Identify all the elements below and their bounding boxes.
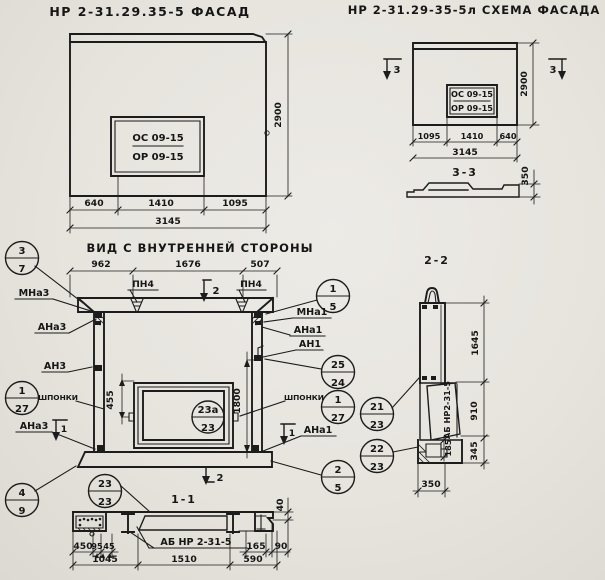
- dim-45: 45: [103, 541, 115, 551]
- marker-2-5-top: 2: [335, 465, 342, 476]
- dim-95: 95: [91, 541, 103, 551]
- label-ana1-bottom: АНа1: [304, 425, 333, 436]
- cut2-top-mark: [203, 280, 211, 295]
- marker-circle-23-23: 23 23: [89, 475, 151, 513]
- label-an1: АН1: [299, 339, 321, 350]
- marker-21-23-bottom: 23: [370, 420, 384, 431]
- label-ana3-bottom: АНа3: [20, 421, 49, 432]
- drawing-sheet: НР 2-31.29.35-5 ФАСАД ОС 09-15 ОР 09-15 …: [0, 0, 605, 580]
- marker-3-7-top: 3: [19, 246, 26, 257]
- inner-window-frame-inner: [129, 387, 238, 444]
- section11-right-tbeam: [256, 515, 266, 530]
- dim-1510: 1510: [171, 554, 197, 565]
- marker-23-23-top: 23: [98, 479, 112, 490]
- facade-drawing: НР 2-31.29.35-5 ФАСАД ОС 09-15 ОР 09-15 …: [49, 4, 292, 233]
- section33-title: 3-3: [452, 166, 478, 179]
- section22-lifting-loop: [425, 288, 439, 303]
- facade-dim-height: 2900: [273, 102, 284, 128]
- cut2-bottom-arrow: [202, 476, 210, 485]
- dim-1045: 1045: [92, 554, 118, 565]
- marker-1-5-bottom: 5: [330, 302, 337, 313]
- marker-4-9-top: 4: [19, 488, 26, 499]
- marker-23-23-bottom: 23: [98, 497, 112, 508]
- section33-dim-350: 350: [520, 166, 531, 185]
- marker-4-9-bottom: 9: [19, 506, 26, 517]
- marker-circle-2-5: 2 5: [271, 461, 355, 495]
- inner-view-title: ВИД С ВНУТРЕННЕЙ СТОРОНЫ: [86, 240, 313, 255]
- pn4-right-label: ПН4: [240, 279, 262, 290]
- schema-cut3-right-arrow: [558, 71, 566, 80]
- marker-22-23-bottom: 23: [370, 462, 384, 473]
- marker-3-7-bottom: 7: [19, 264, 26, 275]
- pn4-left-label: ПН4: [132, 279, 154, 290]
- schema-title: НР 2-31.29-35-5л СХЕМА ФАСАДА: [348, 3, 600, 17]
- dim-590: 590: [243, 554, 262, 565]
- marker-circle-1-27-left: 1 27: [6, 382, 39, 416]
- dim-40: 40: [275, 499, 286, 512]
- dim-165: 165: [246, 541, 265, 552]
- inner-dim-1676: 1676: [175, 259, 201, 270]
- marker-25-24-top: 25: [331, 360, 345, 371]
- marker-1-27-left-top: 1: [19, 386, 26, 397]
- dim-455-arrow-bottom: [119, 412, 125, 419]
- marker-23a-23-top: 23а: [198, 405, 219, 416]
- cut1-right-label: 1: [289, 428, 295, 439]
- section22-embeds: [422, 305, 438, 380]
- dim-345: 345: [469, 441, 480, 460]
- schema-opening-mark-bottom: ОР 09-15: [451, 103, 493, 113]
- pn4-right-leader: [237, 290, 266, 302]
- schema-opening-mark-top: ОС 09-15: [451, 89, 493, 99]
- marker-circle-1-27-right: 1 27: [322, 391, 355, 425]
- inner-dim-962: 962: [91, 259, 110, 270]
- section11-drawing: 23 23 1-1 АБ НР 2-31-5 450 95 45 165 9: [70, 475, 293, 571]
- schema-dim-1095: 1095: [418, 131, 441, 141]
- facade-dim-1410: 1410: [148, 198, 174, 209]
- section22-lifting-loop-inner: [428, 291, 436, 303]
- dim-450: 450: [73, 541, 92, 552]
- label-shponki-right: ШПОНКИ: [284, 393, 324, 402]
- dim-910: 910: [469, 401, 480, 420]
- facade-title: НР 2-31.29.35-5 ФАСАД: [49, 4, 250, 19]
- label-mna1: МНа1: [297, 307, 328, 318]
- facade-dim-640: 640: [84, 198, 103, 209]
- section11-ab-label: АБ НР 2-31-5: [160, 537, 231, 548]
- label-an1-leader: [263, 350, 323, 357]
- label-shponki-left: ШПОНКИ: [38, 393, 78, 402]
- section22-title: 2-2: [424, 254, 450, 267]
- cut1-left-label: 1: [61, 424, 67, 435]
- facade-opening-mark-top: ОС 09-15: [132, 133, 183, 144]
- cut1-left-arrow: [52, 432, 60, 441]
- facade-dim-1095: 1095: [222, 198, 248, 209]
- dim-1800-label: 1800: [232, 388, 243, 414]
- dim-185: 185: [443, 439, 453, 456]
- marker-1-27-right-top: 1: [335, 395, 342, 406]
- marker-circle-4-9: 4 9: [6, 466, 77, 517]
- schema-dim-640: 640: [499, 131, 516, 141]
- schema-cut3-left-arrow: [383, 71, 391, 80]
- dim-350-bottom: 350: [421, 479, 440, 490]
- cut2-bottom-label: 2: [217, 473, 224, 484]
- dim-1645: 1645: [470, 330, 481, 356]
- label-shponki-left-leader: [76, 401, 104, 409]
- section22-bottom-hatch: [418, 445, 430, 463]
- marker-circle-21-23: 21 23: [361, 378, 420, 431]
- section33-profile: [407, 183, 519, 197]
- inner-topbar-embeds: [131, 299, 248, 311]
- section22-ab-label: АБ НР2-31-5: [442, 381, 452, 439]
- marker-1-27-right-bottom: 27: [331, 413, 345, 424]
- dim-455-arrow-top: [119, 379, 125, 386]
- inner-corner-hatch: [94, 312, 262, 325]
- inner-view-drawing: ВИД С ВНУТРЕННЕЙ СТОРОНЫ 962 1676 507 ПН…: [6, 240, 420, 517]
- marker-2-5-bottom: 5: [335, 483, 342, 494]
- schema-cut3-left-label: 3: [394, 65, 401, 76]
- marker-23a-23-bottom: 23: [201, 423, 215, 434]
- label-mna3: МНа3: [19, 288, 50, 299]
- facade-dim-total: 3145: [155, 216, 181, 227]
- schema-dim-1410: 1410: [461, 131, 484, 141]
- section11-rebar-dots: [79, 518, 102, 527]
- section22-mid-block: [420, 383, 461, 440]
- cut2-top-label: 2: [213, 286, 220, 297]
- schema-dim-total: 3145: [452, 147, 478, 158]
- schema-drawing: НР 2-31.29-35-5л СХЕМА ФАСАДА ОС 09-15 О…: [348, 3, 600, 204]
- section11-title: 1-1: [171, 493, 197, 506]
- marker-25-24-bottom: 24: [331, 378, 345, 389]
- dim-90: 90: [275, 541, 288, 552]
- marker-circle-23a-23: 23а 23: [192, 401, 224, 434]
- marker-21-23-top: 21: [370, 402, 384, 413]
- schema-dim-height: 2900: [519, 71, 530, 97]
- label-an3: АН3: [44, 361, 66, 372]
- schema-cut3-right-label: 3: [550, 65, 557, 76]
- marker-1-27-left-bottom: 27: [15, 404, 29, 415]
- section11-slab: [139, 516, 227, 530]
- label-mna1-leader: [264, 318, 331, 322]
- marker-22-23-top: 22: [370, 444, 384, 455]
- marker-1-5-top: 1: [330, 284, 337, 295]
- marker-circle-25-24: 25 24: [265, 356, 355, 390]
- section11-right-block: [255, 512, 273, 531]
- dim-455-label: 455: [105, 390, 116, 409]
- dim-455-lines: [122, 374, 134, 424]
- drawing-svg: НР 2-31.29.35-5 ФАСАД ОС 09-15 ОР 09-15 …: [0, 0, 605, 580]
- marker-circle-22-23: 22 23: [361, 440, 419, 474]
- label-ana1-bottom-leader: [263, 436, 336, 451]
- inner-dim-507: 507: [250, 259, 269, 270]
- section22-drawing: 2-2 АБ НР2-31-5 185 1645 910 345 350: [413, 254, 489, 497]
- label-ana1-top: АНа1: [294, 325, 323, 336]
- label-ana3-top: АНа3: [38, 322, 67, 333]
- inner-embed-plates: [94, 313, 262, 451]
- facade-opening-mark-bottom: ОР 09-15: [132, 152, 183, 163]
